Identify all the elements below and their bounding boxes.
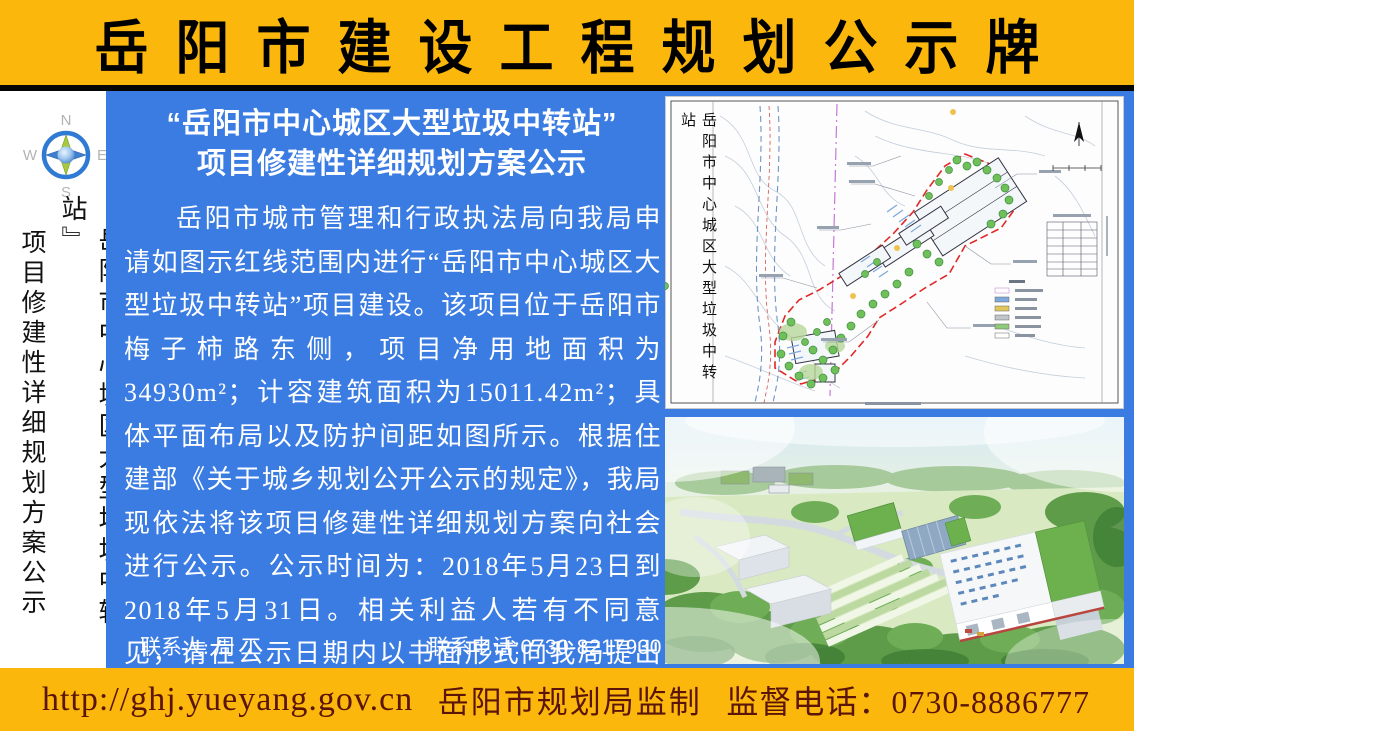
footer-issuer: 岳阳市规划局监制 — [438, 677, 702, 722]
rendering-figure — [665, 417, 1124, 664]
svg-text:N: N — [61, 112, 72, 129]
svg-text:W: W — [23, 147, 38, 164]
notice-title-line2: 项目修建性详细规划方案公示 — [118, 144, 666, 184]
planning-notice-board: 岳阳市建设工程规划公示牌 N W E S 『岳阳市中心城区大型垃圾中转站』 项目 — [0, 0, 1134, 731]
contact-phone: 联系电话:0730-8217930 — [428, 631, 662, 661]
aerial-rendering — [665, 417, 1124, 664]
footer-supervision-phone: 监督电话：0730-8886777 — [726, 677, 1090, 723]
footer-url: http://ghj.yueyang.gov.cn — [42, 681, 413, 719]
notice-panel: “岳阳市中心城区大型垃圾中转站” 项目修建性详细规划方案公示 岳阳市城市管理和行… — [106, 91, 1134, 668]
contact-row: 联系人: 周 工 联系电话:0730-8217930 — [118, 631, 666, 661]
site-plan-title: 岳阳市中心城区大型垃圾中转站 — [677, 112, 719, 396]
notice-title-line1: “岳阳市中心城区大型垃圾中转站” — [118, 104, 666, 144]
screenshot: 岳阳市建设工程规划公示牌 N W E S 『岳阳市中心城区大型垃圾中转站』 项目 — [0, 0, 1377, 731]
compass-icon: N W E S — [22, 109, 110, 201]
site-plan-drawing — [665, 96, 1124, 409]
board-title: 岳阳市建设工程规划公示牌 — [95, 0, 1067, 85]
header-banner: 岳阳市建设工程规划公示牌 — [0, 0, 1134, 85]
sidebar-title-subject: 项目修建性详细规划方案公示 — [13, 229, 49, 655]
site-plan-figure: 岳阳市中心城区大型垃圾中转站 — [665, 96, 1124, 409]
sidebar: N W E S 『岳阳市中心城区大型垃圾中转站』 项目修建性详细规划方案公示 — [0, 91, 106, 668]
notice-title: “岳阳市中心城区大型垃圾中转站” 项目修建性详细规划方案公示 — [118, 104, 666, 184]
footer-banner: http://ghj.yueyang.gov.cn 岳阳市规划局监制 监督电话：… — [0, 668, 1134, 731]
notice-text-block: “岳阳市中心城区大型垃圾中转站” 项目修建性详细规划方案公示 岳阳市城市管理和行… — [118, 91, 666, 668]
contact-person: 联系人: 周 工 — [140, 631, 261, 661]
